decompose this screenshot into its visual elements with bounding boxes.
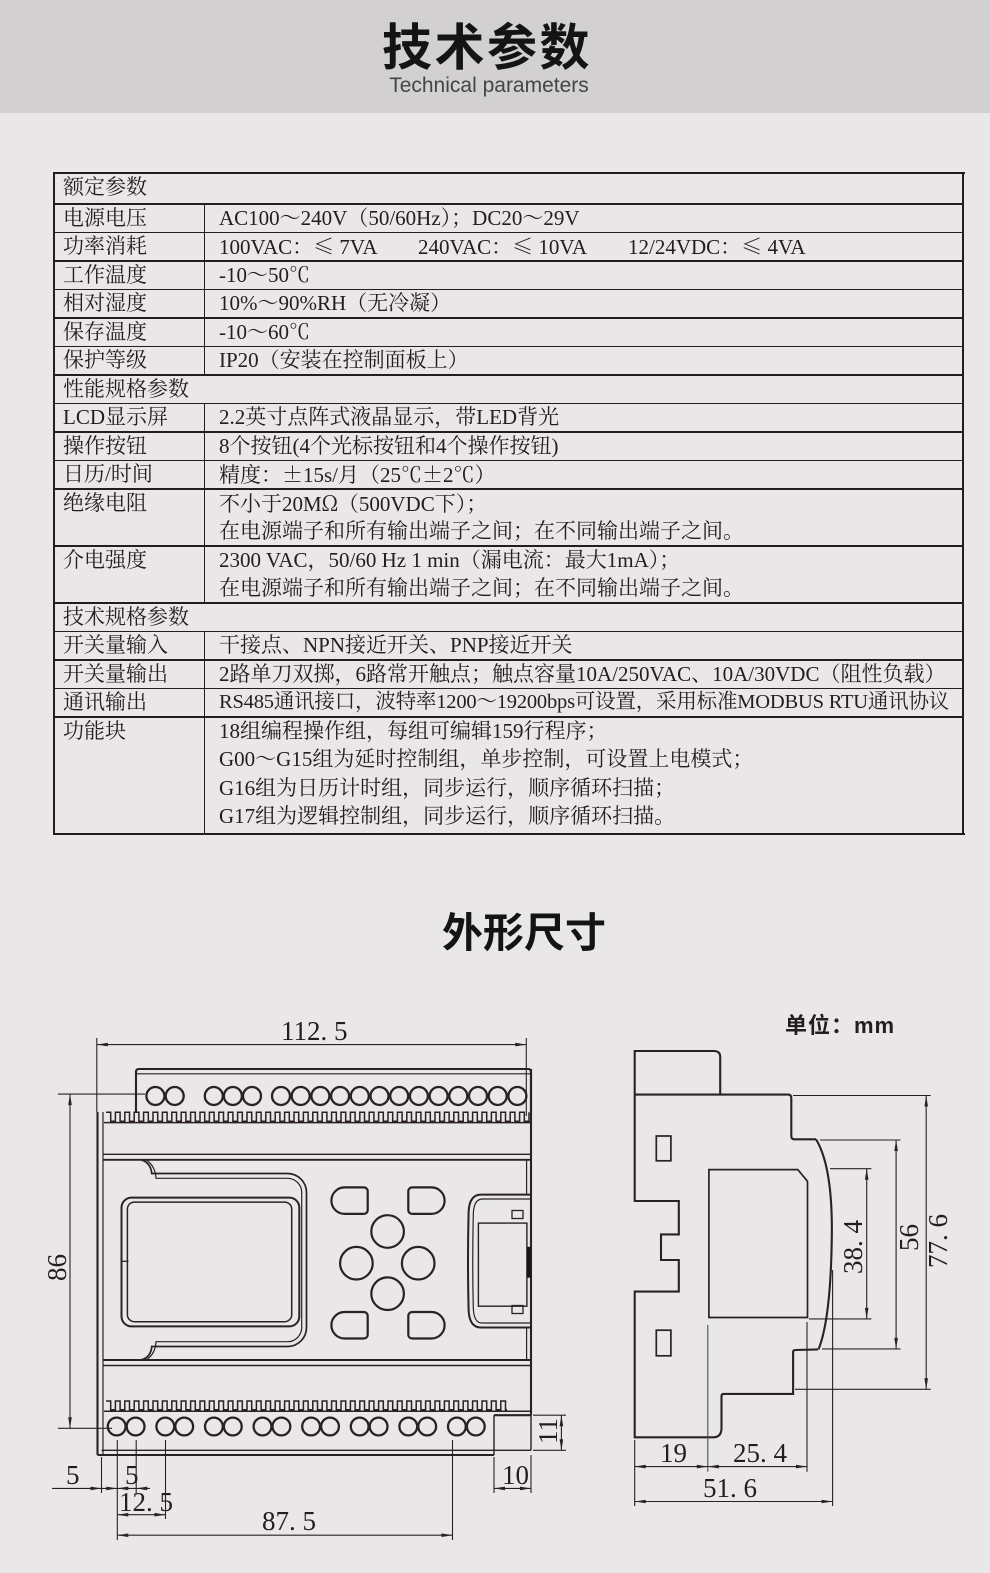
svg-text:5: 5 [66,1460,80,1490]
svg-text:51. 6: 51. 6 [703,1473,757,1503]
svg-text:112. 5: 112. 5 [281,1016,348,1046]
svg-text:12. 5: 12. 5 [119,1487,173,1517]
svg-text:25. 4: 25. 4 [733,1438,788,1468]
svg-text:56: 56 [894,1224,924,1251]
svg-text:单位：mm: 单位：mm [785,1013,895,1038]
svg-text:5: 5 [125,1460,139,1490]
svg-text:77. 6: 77. 6 [923,1214,953,1268]
svg-text:11: 11 [533,1418,563,1444]
svg-text:86: 86 [42,1254,72,1281]
svg-text:19: 19 [660,1438,687,1468]
svg-text:87. 5: 87. 5 [262,1506,316,1536]
svg-text:38. 4: 38. 4 [838,1220,868,1275]
svg-text:10: 10 [502,1460,529,1490]
